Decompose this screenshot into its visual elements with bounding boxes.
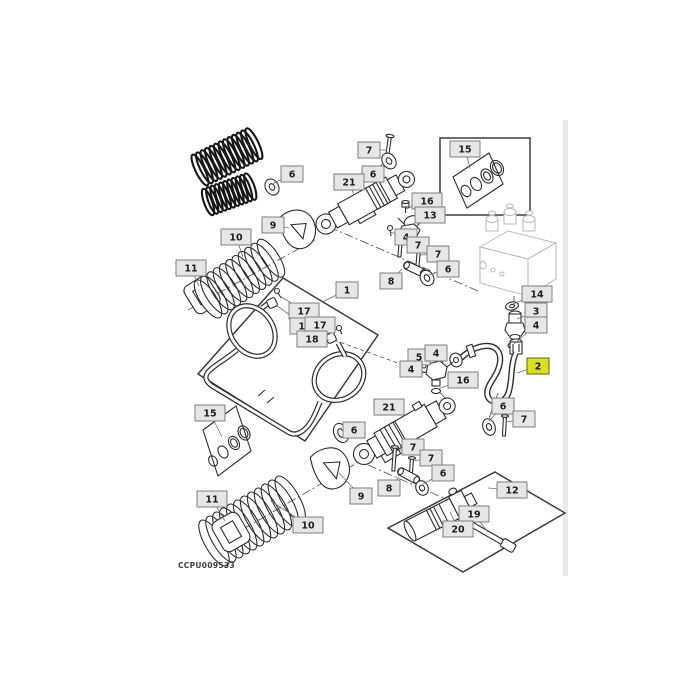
callout-4[interactable]: 4: [525, 317, 547, 333]
callout-4[interactable]: 4: [425, 345, 447, 361]
callout-6[interactable]: 6: [343, 422, 365, 438]
svg-text:6: 6: [445, 265, 452, 276]
svg-text:8: 8: [388, 277, 395, 288]
callout-21[interactable]: 21: [374, 399, 404, 415]
svg-text:1: 1: [344, 286, 351, 297]
fitting-16-top: [402, 201, 409, 214]
svg-text:6: 6: [351, 426, 358, 437]
callout-2-highlighted[interactable]: 2: [527, 358, 549, 374]
svg-text:7: 7: [410, 443, 417, 454]
svg-text:6: 6: [440, 469, 447, 480]
brush-spring-upper: [189, 126, 266, 187]
svg-text:10: 10: [229, 233, 243, 244]
svg-text:11: 11: [184, 264, 197, 275]
hose-top-fitting: [510, 339, 522, 354]
svg-text:7: 7: [415, 241, 422, 252]
control-valve-block: [480, 204, 556, 296]
callout-9[interactable]: 9: [262, 217, 284, 233]
callout-6[interactable]: 6: [362, 166, 384, 182]
svg-text:10: 10: [301, 521, 315, 532]
bolt-4-top: [388, 226, 393, 237]
svg-text:12: 12: [505, 486, 518, 497]
callout-1[interactable]: 1: [336, 282, 358, 298]
svg-text:4: 4: [408, 365, 415, 376]
callout-7[interactable]: 7: [427, 246, 449, 262]
callout-13[interactable]: 13: [415, 207, 445, 223]
kit-fitting-a: [266, 289, 281, 309]
svg-text:21: 21: [382, 403, 395, 414]
svg-text:6: 6: [289, 170, 296, 181]
callout-7[interactable]: 7: [513, 411, 535, 427]
svg-text:4: 4: [433, 349, 440, 360]
callout-11[interactable]: 11: [176, 260, 206, 276]
svg-text:18: 18: [305, 335, 319, 346]
image-code: CCPU009533: [178, 561, 235, 570]
callout-12[interactable]: 12: [497, 482, 527, 498]
callout-11[interactable]: 11: [197, 491, 227, 507]
callout-6[interactable]: 6: [432, 465, 454, 481]
callout-7[interactable]: 7: [407, 237, 429, 253]
washer-6-top-left: [262, 176, 282, 197]
callout-20[interactable]: 20: [443, 521, 473, 537]
exploded-parts-diagram: CCPU009533 76216910111516134778614342117…: [0, 0, 700, 700]
svg-text:15: 15: [203, 409, 216, 420]
svg-text:21: 21: [342, 178, 355, 189]
svg-text:7: 7: [521, 415, 528, 426]
svg-text:6: 6: [500, 402, 507, 413]
callout-15[interactable]: 15: [450, 141, 480, 157]
pin-7-right: [500, 415, 508, 437]
svg-text:7: 7: [435, 250, 442, 261]
svg-text:17: 17: [297, 307, 310, 318]
svg-text:15: 15: [458, 145, 471, 156]
callout-14[interactable]: 14: [522, 286, 552, 302]
fitting-3: [505, 311, 525, 340]
svg-text:16: 16: [420, 197, 434, 208]
washer-6-right: [480, 417, 497, 437]
svg-text:9: 9: [358, 492, 365, 503]
callout-10[interactable]: 10: [293, 517, 323, 533]
svg-text:8: 8: [386, 484, 393, 495]
svg-text:7: 7: [366, 146, 373, 157]
callout-4[interactable]: 4: [400, 361, 422, 377]
callout-16[interactable]: 16: [448, 372, 478, 388]
svg-text:6: 6: [370, 170, 377, 181]
svg-text:9: 9: [270, 221, 277, 232]
callout-6[interactable]: 6: [437, 261, 459, 277]
svg-text:17: 17: [313, 321, 326, 332]
svg-text:20: 20: [451, 525, 465, 536]
callout-7[interactable]: 7: [420, 450, 442, 466]
spring-bracket-bottom: [306, 441, 357, 494]
callout-15[interactable]: 15: [195, 405, 225, 421]
svg-text:7: 7: [428, 454, 435, 465]
svg-text:2: 2: [535, 362, 542, 373]
callout-10[interactable]: 10: [221, 229, 251, 245]
callout-8[interactable]: 8: [380, 273, 402, 289]
svg-text:14: 14: [530, 290, 544, 301]
svg-text:11: 11: [205, 495, 218, 506]
callout-6[interactable]: 6: [281, 166, 303, 182]
callout-8[interactable]: 8: [378, 480, 400, 496]
svg-text:19: 19: [467, 510, 480, 521]
svg-text:13: 13: [423, 211, 436, 222]
svg-text:3: 3: [533, 307, 540, 318]
callout-7[interactable]: 7: [358, 142, 380, 158]
callout-21[interactable]: 21: [334, 174, 364, 190]
page-divider-bar: [563, 120, 568, 576]
svg-text:16: 16: [456, 376, 470, 387]
callout-6[interactable]: 6: [492, 398, 514, 414]
callout-18[interactable]: 18: [297, 331, 327, 347]
svg-text:4: 4: [533, 321, 540, 332]
callout-9[interactable]: 9: [350, 488, 372, 504]
parts-diagram-page: CCPU009533 76216910111516134778614342117…: [0, 0, 700, 700]
callout-19[interactable]: 19: [459, 506, 489, 522]
